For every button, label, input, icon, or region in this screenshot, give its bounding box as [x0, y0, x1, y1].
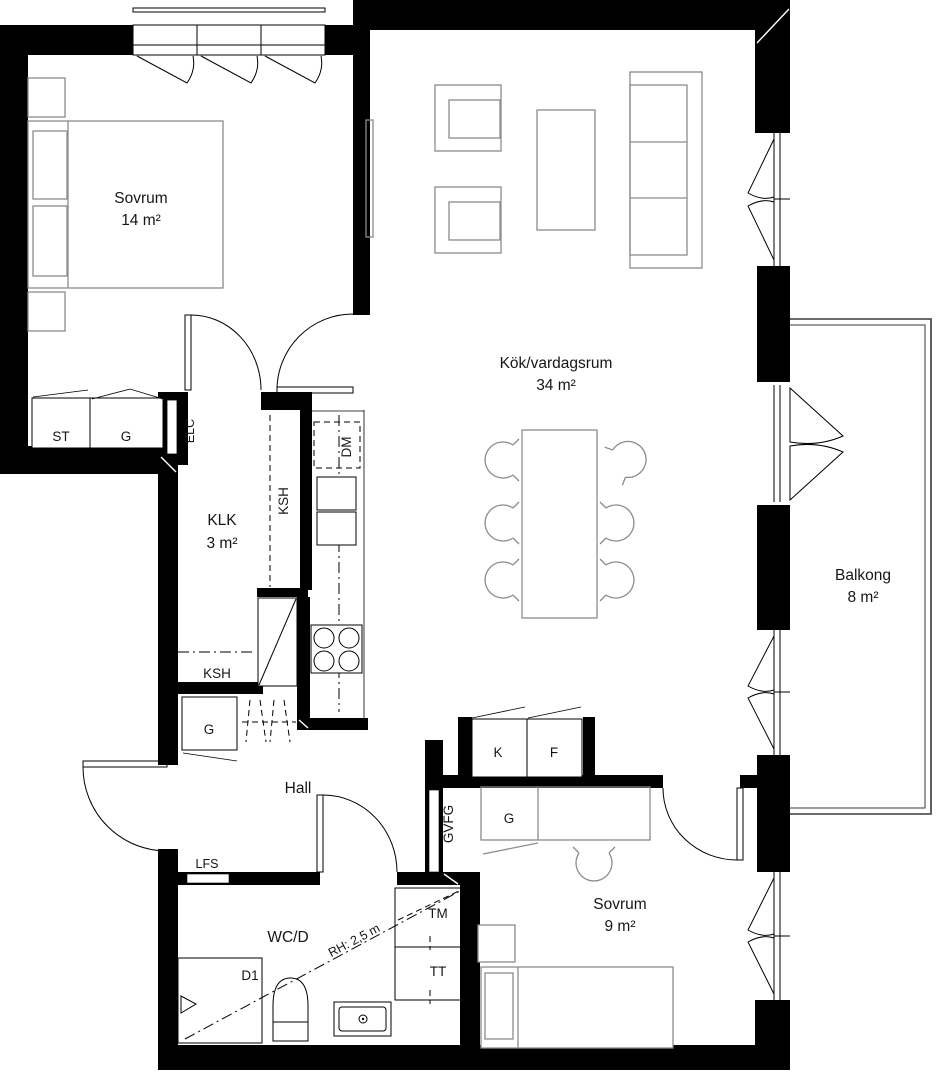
balcony-door	[774, 385, 843, 502]
floorplan-page: Sovrum 14 m² Kök/vardagsrum 34 m² KLK 3 …	[0, 0, 943, 1080]
sink	[317, 477, 356, 510]
entrance-door	[83, 761, 167, 851]
label-ksh-lower: KSH	[203, 666, 231, 681]
nightstand	[28, 292, 65, 331]
label-f: F	[550, 745, 558, 760]
stove	[311, 625, 362, 673]
dining-chair	[485, 502, 519, 544]
dining-table	[522, 430, 597, 618]
dining-chair	[485, 439, 519, 481]
furniture-bedroom9	[478, 787, 673, 1048]
armchair	[435, 85, 501, 151]
room-area-sovrum14: 14 m²	[121, 212, 161, 229]
nightstand	[478, 925, 515, 962]
label-ksh-upper: KSH	[276, 487, 291, 515]
bedroom9-door	[663, 788, 743, 860]
label-gvfg: GVFG	[441, 805, 456, 843]
label-dm: DM	[339, 437, 354, 458]
label-ceiling-height: RH: 2,5 m	[326, 921, 382, 960]
label-g-hall: G	[204, 722, 215, 737]
floor-drain	[181, 996, 196, 1013]
label-lfs: LFS	[196, 857, 219, 871]
floorplan-canvas: Sovrum 14 m² Kök/vardagsrum 34 m² KLK 3 …	[0, 0, 943, 1080]
bedroom14-door	[277, 314, 353, 393]
dining-chair	[600, 559, 634, 601]
window-living-bottom	[748, 630, 790, 755]
label-tt: TT	[430, 964, 447, 979]
gvfg-shaft	[429, 790, 439, 872]
window-bedroom9	[748, 872, 790, 1000]
room-label-kok-vardagsrum: Kök/vardagsrum	[500, 355, 613, 372]
lfs-hatch	[187, 874, 229, 883]
sofa	[630, 72, 702, 268]
room-label-balkong: Balkong	[835, 567, 891, 584]
room-area-kok-vardagsrum: 34 m²	[536, 377, 576, 394]
coffee-table	[537, 110, 595, 230]
wcd-door	[317, 795, 397, 872]
drying-rack	[242, 700, 296, 742]
label-tm: TM	[428, 906, 448, 921]
dining-chair	[605, 433, 654, 485]
room-label-klk: KLK	[207, 512, 237, 529]
nightstand	[28, 78, 65, 117]
tall-cabinet	[258, 598, 297, 686]
dining-chair	[485, 559, 519, 601]
room-label-sovrum14: Sovrum	[114, 190, 167, 207]
dining-chair	[600, 502, 634, 544]
single-bed	[481, 967, 673, 1048]
room-area-balkong: 8 m²	[848, 589, 879, 606]
desk-chair	[573, 847, 615, 881]
toilet	[273, 978, 308, 1041]
washbasin	[334, 1002, 391, 1036]
elc-shaft	[167, 400, 177, 454]
ceiling-height-line	[185, 891, 460, 1039]
room-area-klk: 3 m²	[207, 535, 238, 552]
label-d1: D1	[241, 968, 258, 983]
label-g-sovrum9: G	[504, 811, 515, 826]
window-bedroom14	[133, 8, 325, 83]
armchair	[435, 187, 501, 253]
klk-door	[185, 315, 261, 390]
label-elc: ELC	[183, 419, 197, 443]
sink	[317, 512, 356, 545]
furniture-bedroom14	[28, 78, 223, 448]
furniture-living	[366, 72, 702, 268]
wcd-fixtures	[178, 888, 463, 1043]
label-k: K	[493, 745, 502, 760]
label-st: ST	[52, 429, 69, 444]
room-area-sovrum9: 9 m²	[605, 918, 636, 935]
furniture-dining	[485, 430, 653, 618]
label-g-bedroom: G	[121, 429, 132, 444]
window-living-top	[748, 133, 790, 266]
room-label-sovrum9: Sovrum	[593, 896, 646, 913]
room-label-wcd: WC/D	[267, 929, 308, 946]
room-label-hall: Hall	[285, 780, 312, 797]
